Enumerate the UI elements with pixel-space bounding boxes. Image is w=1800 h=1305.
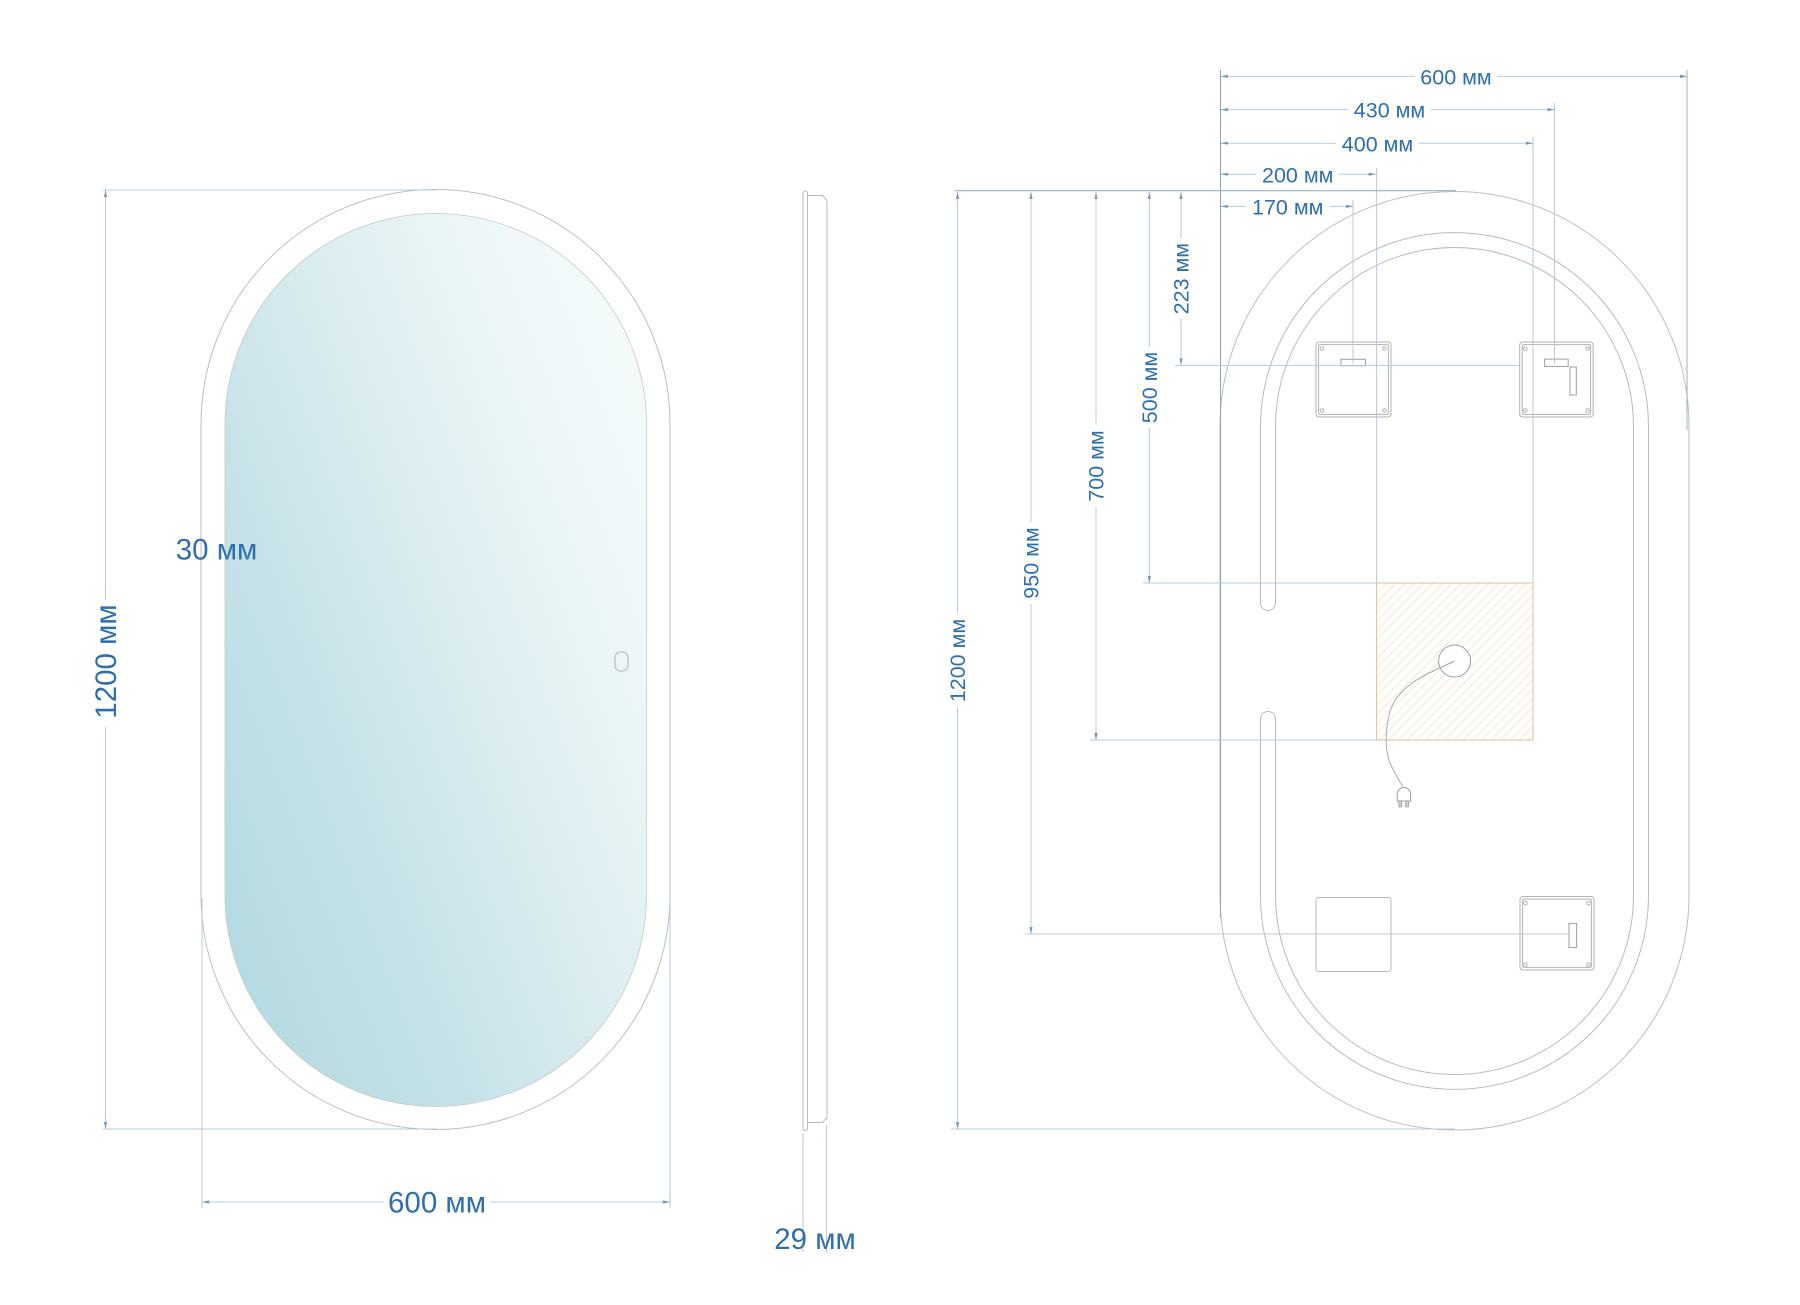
svg-text:430 мм: 430 мм: [1354, 99, 1425, 123]
svg-text:30 мм: 30 мм: [176, 534, 258, 567]
svg-text:200 мм: 200 мм: [1262, 163, 1333, 187]
svg-text:1200 мм: 1200 мм: [90, 604, 123, 718]
svg-text:950 мм: 950 мм: [1020, 527, 1044, 598]
svg-text:600 мм: 600 мм: [388, 1187, 486, 1220]
svg-text:1200 мм: 1200 мм: [946, 619, 970, 702]
svg-text:29 мм: 29 мм: [774, 1223, 856, 1256]
svg-text:400 мм: 400 мм: [1342, 132, 1413, 156]
svg-text:700 мм: 700 мм: [1085, 430, 1109, 501]
svg-text:170 мм: 170 мм: [1252, 196, 1323, 220]
svg-text:600 мм: 600 мм: [1420, 66, 1491, 90]
svg-text:223 мм: 223 мм: [1170, 243, 1194, 314]
svg-text:500 мм: 500 мм: [1138, 352, 1162, 423]
